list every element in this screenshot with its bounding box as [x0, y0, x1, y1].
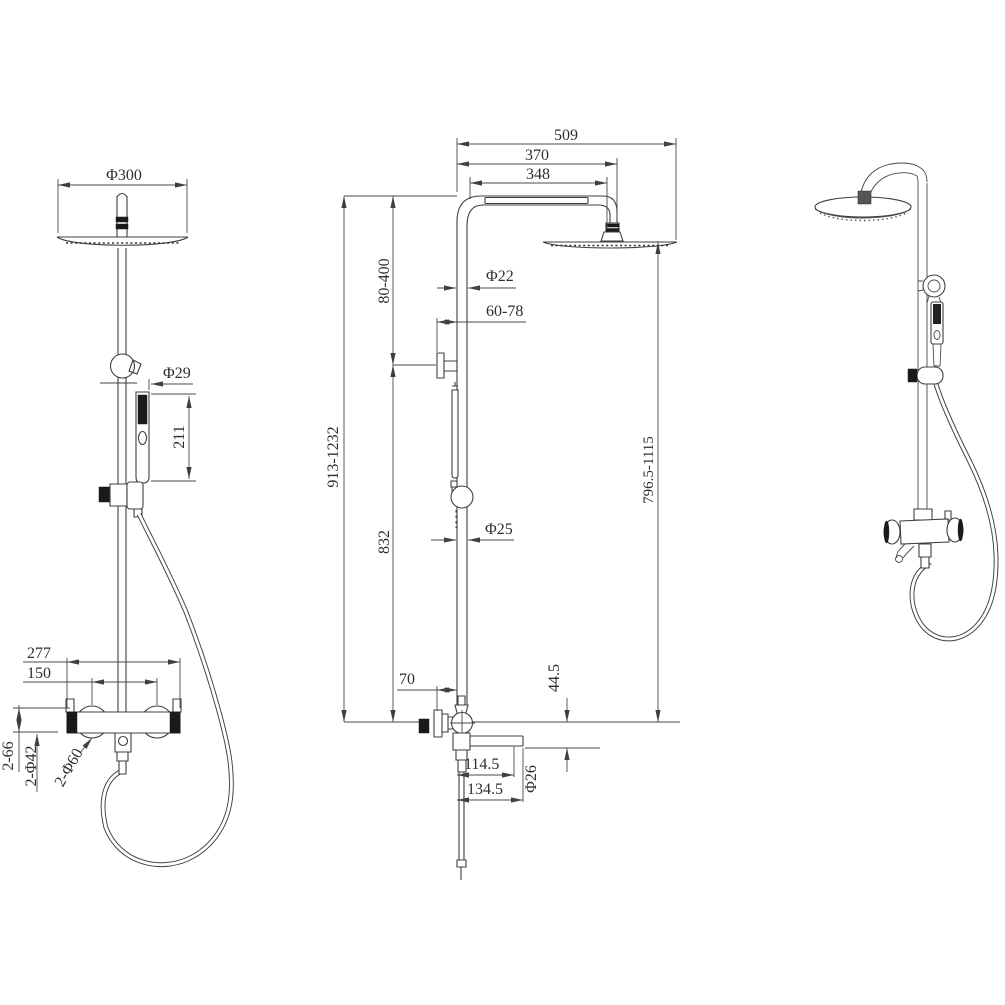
- head-fitting-3d: [858, 191, 871, 204]
- dim-wall-offset: 70: [399, 671, 415, 688]
- technical-drawing-page: Φ300 Φ29 211 277 150 2-66 2-Φ42 2-Φ60: [0, 0, 1005, 1005]
- dim-upper-height: 80-400: [376, 258, 393, 303]
- outlet-connector: [117, 752, 128, 774]
- holder-knob: [99, 487, 110, 502]
- hose-drop-side: [457, 772, 466, 880]
- dim-pipe-diameter-bottom: Φ25: [485, 521, 513, 538]
- dim-spout-diameter: Φ26: [523, 765, 540, 793]
- dim-pipe-diameter-top: Φ22: [486, 268, 514, 285]
- hand-shower-face-3d: [933, 304, 941, 324]
- dim-valve-centers: 150: [27, 665, 51, 682]
- wall-bracket: [437, 353, 457, 378]
- shower-system-dimension-drawing: Φ300 Φ29 211 277 150 2-66 2-Φ42 2-Φ60: [0, 0, 1005, 1005]
- hand-shower-side: [452, 390, 458, 478]
- dim-overall-width: 509: [554, 127, 578, 144]
- dim-head-to-valve: 796.5-1115: [641, 436, 657, 504]
- dim-spout-reach-2: 134.5: [467, 781, 503, 798]
- wall-knob-side: [419, 719, 429, 733]
- valve-bar: [67, 712, 180, 733]
- dim-handle-diameter: 2-Φ42: [23, 745, 40, 786]
- shower-arm: [481, 196, 617, 223]
- dim-spout-reach-1: 114.5: [464, 756, 499, 773]
- dim-handshower-length: 211: [171, 425, 188, 448]
- head-connector-bands: [116, 217, 128, 229]
- arm-handle-bar: [485, 198, 588, 204]
- holder-body: [110, 484, 127, 506]
- dim-wall-distance: 60-78: [486, 303, 523, 320]
- head-flare-side: [601, 232, 623, 241]
- dim-total-height: 913-1232: [325, 426, 342, 487]
- valve-cap-right: [170, 712, 180, 733]
- valve-tee-3d: [914, 509, 932, 520]
- dim-arm-width: 370: [525, 147, 549, 164]
- valve-cap-left: [67, 712, 77, 733]
- spout-side: [470, 736, 523, 746]
- valve-handle-left-cap: [884, 521, 889, 543]
- dim-spout-drop: 44.5: [546, 664, 563, 692]
- front-view: Φ300 Φ29 211 277 150 2-66 2-Φ42 2-Φ60: [0, 167, 231, 865]
- wall-mount-steps: [434, 710, 453, 737]
- valve-lever-tip: [896, 556, 903, 563]
- leader-phi60: [80, 738, 92, 753]
- side-view: 509 370 348 913-1232 80-400 832 796.5-11…: [325, 127, 680, 880]
- valve-handle-right-cap: [958, 519, 963, 541]
- perspective-view: [815, 163, 996, 639]
- dim-lower-height: 832: [376, 530, 393, 554]
- dim-escutcheon-diameter: 2-Φ60: [51, 746, 86, 790]
- ring-holder-3d: [923, 275, 945, 297]
- dim-handle-width: 348: [526, 166, 550, 183]
- outlet-block-side: [453, 733, 470, 750]
- hand-shower-spray-face: [138, 395, 147, 424]
- slider-knob-3d: [908, 369, 917, 382]
- slider-clamp-3d: [917, 367, 943, 384]
- dim-valve-body-height: 2-66: [0, 741, 17, 770]
- riser-pipe-3d: [918, 183, 927, 512]
- dim-handshower-diameter: Φ29: [163, 365, 191, 382]
- riser-pipe: [118, 248, 126, 712]
- valve-body-3d: [900, 519, 949, 544]
- riser-pipe-side: [457, 196, 483, 705]
- slider-knob-side: [451, 486, 473, 508]
- side-extension-lines: [344, 138, 676, 802]
- hand-shower-handle-3d: [933, 344, 941, 366]
- dim-valve-width: 277: [27, 645, 51, 662]
- dim-head-diameter: Φ300: [106, 167, 142, 184]
- outlet-square: [115, 733, 131, 752]
- holder-clamp: [127, 482, 143, 509]
- valve-outlet-3d: [919, 544, 931, 568]
